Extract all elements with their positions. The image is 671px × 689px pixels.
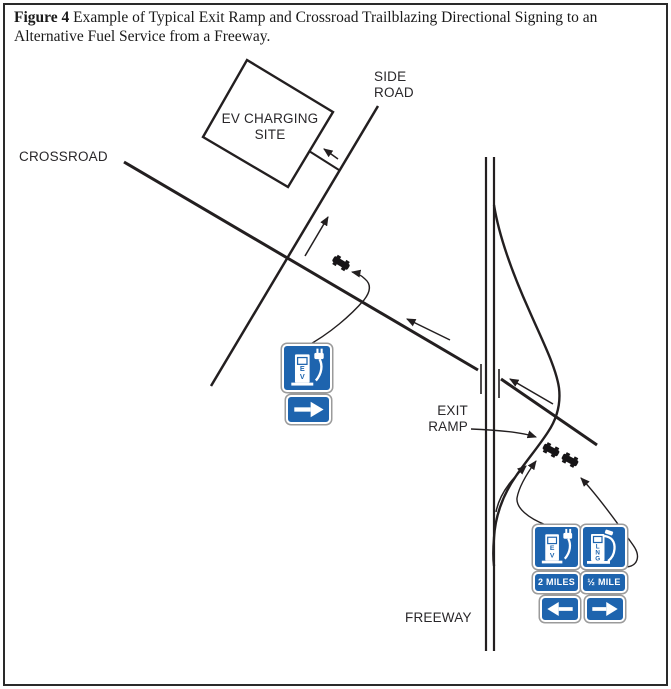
crossroad-sign-leader: [305, 272, 369, 347]
pump-nozzle: [605, 529, 614, 535]
exit-ramp-label-line1: EXIT: [408, 403, 468, 419]
exit-ev-service-sign: E V: [533, 525, 580, 569]
ev-charging-symbol-icon: E V: [284, 346, 330, 390]
freeway-road: [486, 157, 494, 651]
right-arrow-icon: [587, 598, 623, 620]
side-road-label-line2: ROAD: [374, 85, 414, 101]
plug-icon: [314, 349, 323, 359]
pump-letter-v: V: [550, 552, 555, 559]
freeway-label: FREEWAY: [405, 610, 472, 626]
ev-charging-symbol-icon: E V: [535, 527, 578, 567]
sign-leaders: [305, 272, 637, 567]
pump-base: [291, 383, 313, 386]
plug-cord: [565, 539, 570, 559]
ev-site-label-line1: EV CHARGING: [213, 111, 327, 127]
crossroad-label: CROSSROAD: [19, 149, 108, 165]
exit-ramp-label-line2: RAMP: [408, 419, 468, 435]
exit-lng-right-arrow-plate: [585, 596, 625, 622]
exit-ev-left-arrow-plate: [540, 596, 580, 622]
side-road-label-line1: SIDE: [374, 69, 414, 85]
exit-lng-service-sign: L N G: [581, 525, 627, 569]
ev-site-label: EV CHARGING SITE: [213, 111, 327, 142]
exit-ev-distance-plate: 2 MILES: [533, 572, 580, 593]
site-driveway: [309, 151, 339, 170]
crossroad-ev-service-sign: E V: [282, 344, 332, 392]
pump-screen: [548, 537, 557, 543]
figure-page: Figure 4 Example of Typical Exit Ramp an…: [0, 0, 671, 689]
lng-symbol-icon: L N G: [583, 527, 625, 567]
side-road-label: SIDE ROAD: [374, 69, 414, 100]
exit-lng-sign-marker: [560, 451, 580, 469]
direction-arrows: [305, 149, 553, 512]
exit-ramp-curve: [493, 205, 559, 566]
ev-site-label-line2: SITE: [213, 127, 327, 143]
grade-separation-ticks: [481, 364, 499, 398]
pump-letter-e: E: [550, 545, 555, 552]
exit-lng-distance-plate: ½ MILE: [581, 572, 627, 593]
exit-ramp-label-leader: [471, 429, 536, 437]
pump-screen: [594, 537, 603, 543]
exit-ramp-label: EXIT RAMP: [408, 403, 468, 434]
crossroad-west-segment: [124, 162, 478, 370]
pump-letter-v: V: [300, 372, 305, 381]
pump-base: [542, 561, 563, 564]
plug-cord: [316, 359, 322, 380]
sign-location-markers: [331, 254, 581, 469]
crossroad-sign-marker: [331, 254, 352, 273]
crossroad-right-arrow-plate: [286, 395, 331, 424]
left-arrow-icon: [542, 598, 578, 620]
pump-hose: [605, 536, 615, 561]
exit-ev-sign-marker: [541, 441, 561, 459]
crossroad-east-segment: [501, 379, 597, 445]
driveway-direction-arrow: [324, 149, 338, 159]
pump-letter-g: G: [595, 556, 600, 563]
crossroad-west-direction-arrow: [407, 319, 450, 340]
right-arrow-icon: [288, 397, 329, 422]
plug-icon: [563, 529, 572, 539]
